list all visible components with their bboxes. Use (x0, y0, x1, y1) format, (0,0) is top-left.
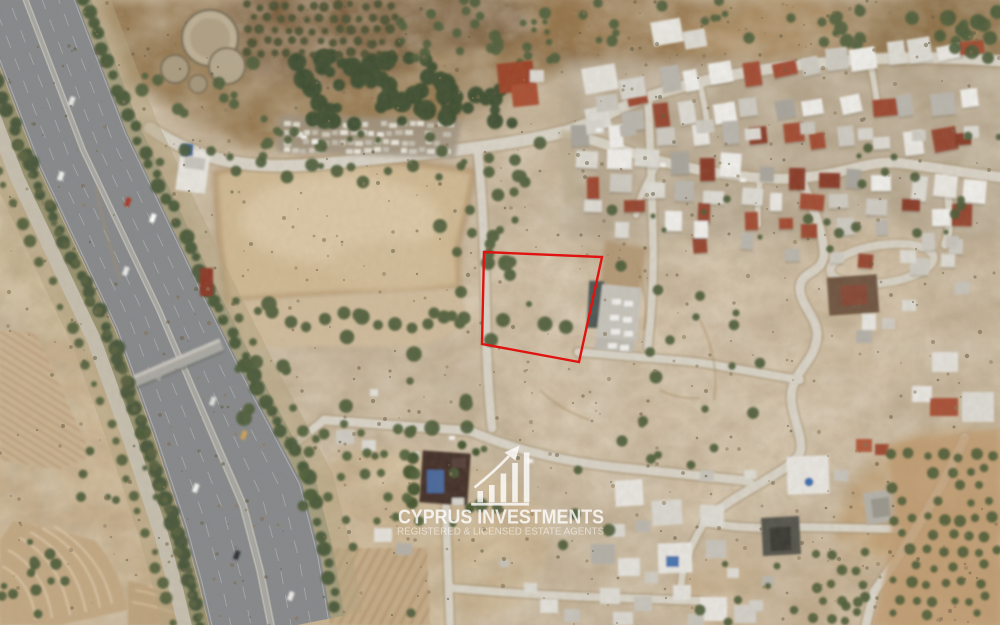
svg-text:REGISTERED & LICENSED ESTATE A: REGISTERED & LICENSED ESTATE AGENTS (397, 526, 604, 538)
